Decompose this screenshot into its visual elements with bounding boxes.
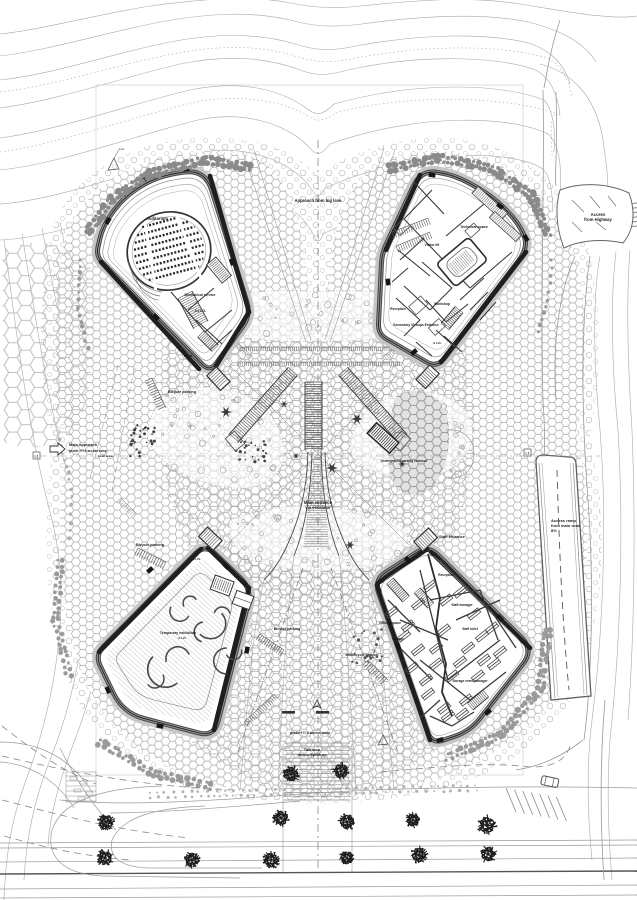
svg-text:-0 LVL: -0 LVL xyxy=(178,636,187,640)
svg-text:Temporary exhibition: Temporary exhibition xyxy=(160,631,196,635)
svg-text:Auditorium: Auditorium xyxy=(146,216,168,221)
svg-text:gentle +7/-0 access ramp: gentle +7/-0 access ramp xyxy=(69,449,107,453)
svg-text:Technical space: Technical space xyxy=(460,225,488,229)
svg-text:-0 LVL: -0 LVL xyxy=(433,341,442,345)
svg-text:Taxi stop: Taxi stop xyxy=(304,748,321,752)
svg-text:Bicycle parking: Bicycle parking xyxy=(136,543,165,547)
svg-text:+4: +4 xyxy=(120,147,124,151)
svg-text:Storage event manager: Storage event manager xyxy=(452,679,488,683)
svg-text:from Highway: from Highway xyxy=(584,217,612,222)
svg-text:Staff manager: Staff manager xyxy=(451,603,473,607)
svg-text:8%: 8% xyxy=(551,528,557,533)
svg-text:L1: L1 xyxy=(35,455,39,459)
svg-text:Secondary /Groups Entrance: Secondary /Groups Entrance xyxy=(393,323,439,327)
svg-text:Bicycle parking: Bicycle parking xyxy=(168,390,197,394)
svg-text:L1: L1 xyxy=(526,452,530,456)
svg-text:Visitor lift: Visitor lift xyxy=(425,243,441,247)
svg-text:Underground parking entrance: Underground parking entrance xyxy=(381,459,428,463)
svg-text:+0 LVL: +0 LVL xyxy=(191,557,201,561)
svg-text:drop-off/pick-up: drop-off/pick-up xyxy=(297,753,327,757)
svg-text:Main approach: Main approach xyxy=(69,442,98,447)
svg-text:Workshop: Workshop xyxy=(434,302,450,306)
svg-text:-0.4 LVL: -0.4 LVL xyxy=(194,309,206,313)
svg-text:via escalator: via escalator xyxy=(305,505,331,510)
svg-text:Staff Entrance: Staff Entrance xyxy=(439,535,465,539)
svg-text:Artist: Artist xyxy=(184,354,193,358)
svg-text:gentle +7/-0 access ramp: gentle +7/-0 access ramp xyxy=(290,731,330,735)
svg-text:Reception: Reception xyxy=(438,573,453,577)
svg-text:to all areas: to all areas xyxy=(98,454,114,458)
svg-text:Staff toilet: Staff toilet xyxy=(462,627,479,631)
svg-text:Reception: Reception xyxy=(390,307,405,311)
svg-text:Mechanical service: Mechanical service xyxy=(185,293,216,297)
svg-text:Storage: Storage xyxy=(392,637,404,641)
svg-text:Offices space: Offices space xyxy=(379,621,401,625)
svg-text:Approach from big lane: Approach from big lane xyxy=(295,198,343,203)
svg-text:Bicycle parking: Bicycle parking xyxy=(274,627,301,631)
